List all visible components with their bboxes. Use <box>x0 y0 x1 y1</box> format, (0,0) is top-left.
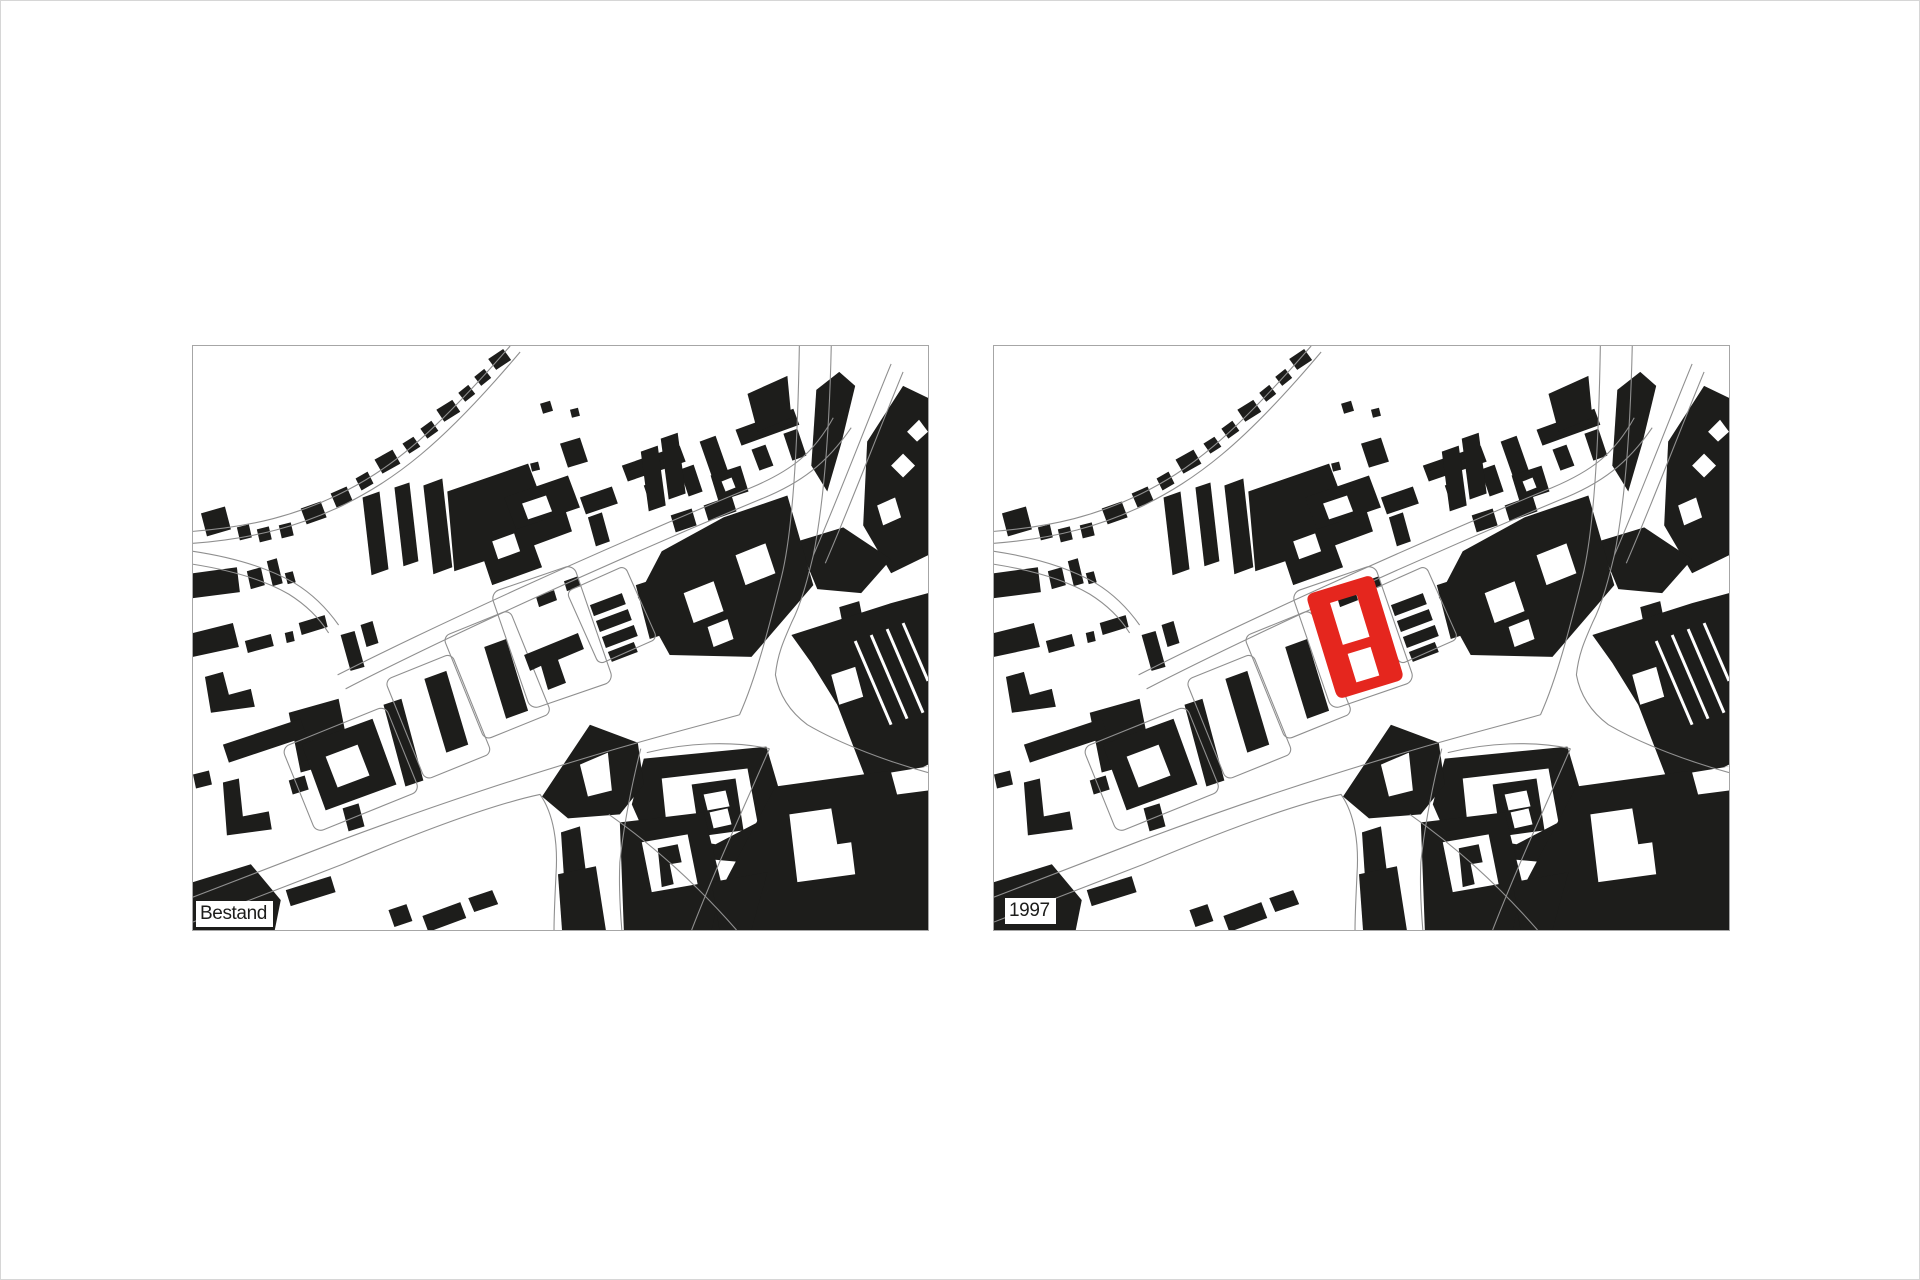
map-label-bestand: Bestand <box>196 901 273 927</box>
site-plan-1997-svg <box>994 346 1729 930</box>
highlighted-new-building <box>1306 574 1405 699</box>
site-plan-bestand-svg <box>193 346 928 930</box>
existing-site-building <box>524 633 584 690</box>
map-panel-1997: 1997 <box>993 345 1730 931</box>
map-label-1997: 1997 <box>1005 898 1056 924</box>
figure-ground-comparison-page: Bestand 1997 <box>0 0 1920 1280</box>
map-panel-bestand: Bestand <box>192 345 929 931</box>
